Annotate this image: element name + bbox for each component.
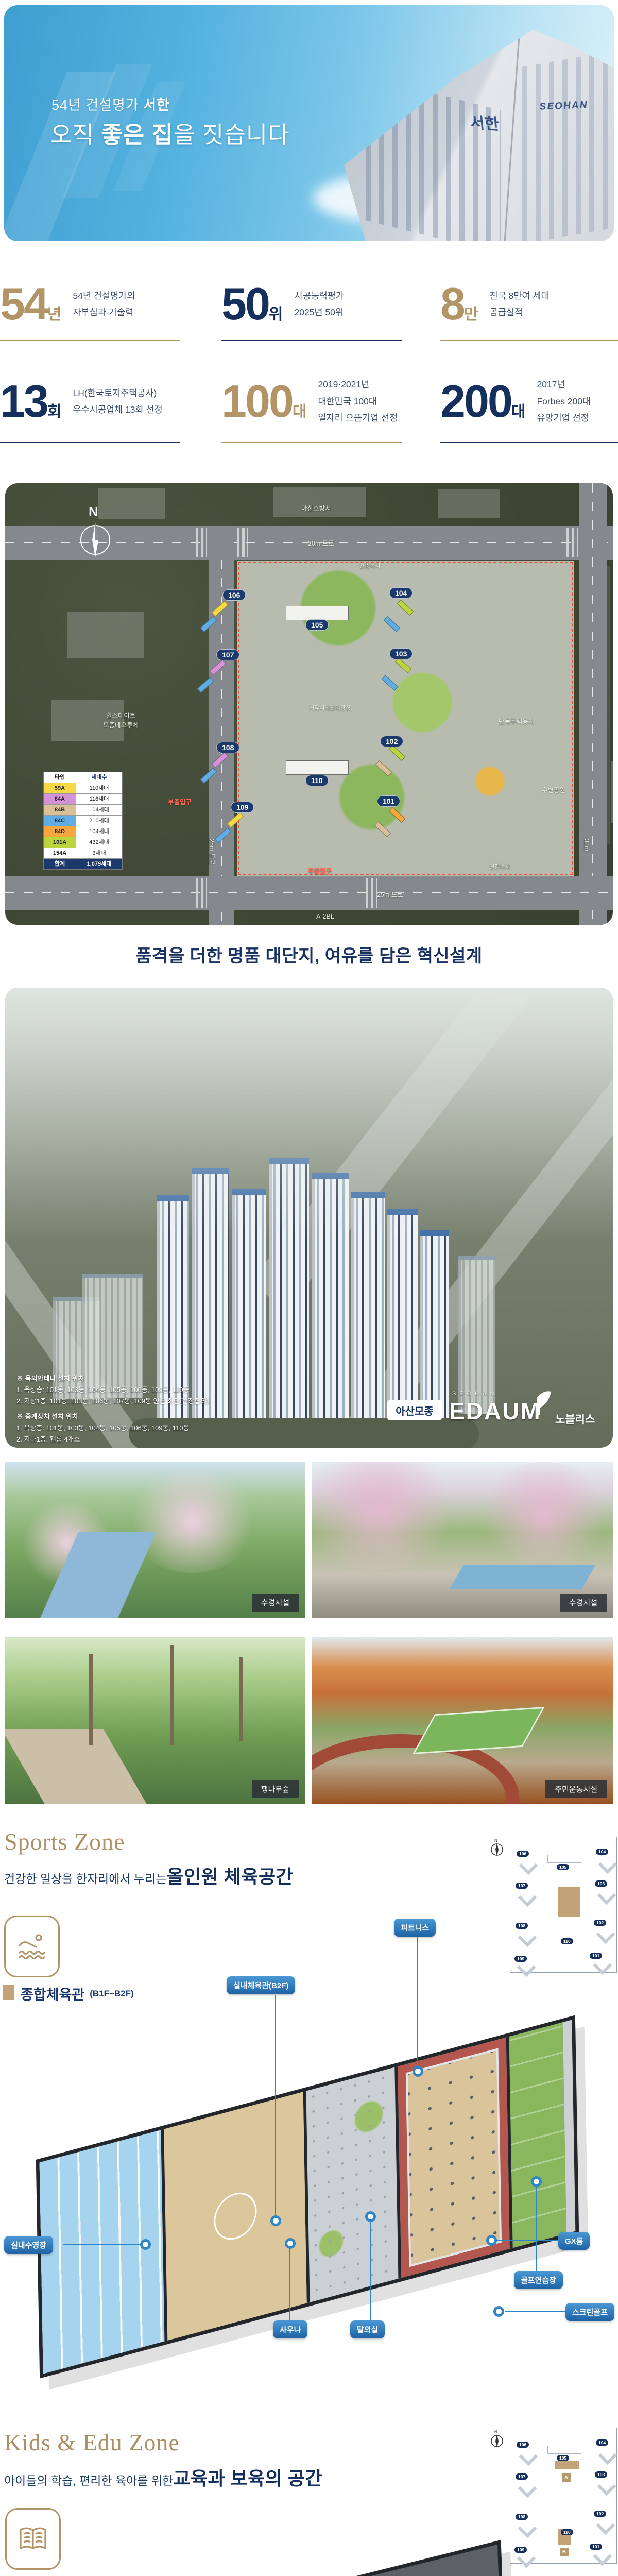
minimap-pill: 102: [594, 1920, 606, 1926]
callout-dot: [493, 2306, 504, 2317]
photo-label: 주민운동시설: [545, 1780, 607, 1798]
minimap-community-shape: [550, 1929, 583, 1937]
minimap-building-shape: [518, 1928, 537, 1947]
stat-value: 100: [221, 376, 293, 427]
callout-dot: [365, 2211, 376, 2222]
minimap-pill: 105: [557, 1864, 569, 1870]
minimap-building-shape: [519, 1856, 538, 1875]
callout-line: [370, 2218, 371, 2320]
minimap-pill: 108: [516, 2514, 528, 2520]
stat-households: 8만 전국 8만여 세대공급실적: [440, 268, 618, 341]
stat-desc: 2019·2021년대한민국 100대일자리 으뜸기업 선정: [318, 376, 398, 426]
stat-number: 50위: [221, 281, 283, 327]
landscape-photo-water-feature-2: 수경시설: [312, 1462, 613, 1618]
minimap-pill: 108: [516, 1923, 528, 1929]
legend-row: 59A110세대: [44, 783, 122, 793]
landscape-photo-forest: 팽나무숲: [5, 1637, 305, 1804]
minimap-badge-a: A: [562, 2473, 571, 2482]
stat-desc: 2017년Forbes 200대유망기업 선정: [537, 376, 591, 426]
label-road-25m-bottom: 25m 도로: [377, 889, 403, 899]
legend-row: 84C210세대: [44, 815, 122, 826]
minimap-community-shape: [547, 1855, 581, 1863]
road-centerline: [5, 892, 613, 893]
compass-icon: N: [77, 505, 113, 564]
building-pill-104: 104: [389, 587, 413, 599]
label-main-gate: 주출입구: [308, 866, 332, 875]
offsite-block: [438, 489, 500, 518]
legend-total-row: 합계1,079세대: [44, 858, 122, 869]
crosswalk: [566, 528, 578, 557]
stat-desc: 54년 건설명가의자부심과 기술력: [73, 287, 135, 321]
stat-unit: 년: [47, 306, 62, 323]
minimap-compass-icon: N: [490, 2429, 504, 2452]
stat-desc: LH(한국토지주택공사)우수시공업체 13회 선정: [73, 385, 163, 418]
stat-unit: 회: [47, 403, 62, 420]
seohan-headquarters-building: [344, 30, 614, 241]
logo-noblesse-text: 노블리스: [555, 1411, 595, 1427]
label-buffer-green: 완충녹지: [359, 562, 380, 570]
callout-line: [496, 2240, 558, 2241]
stat-value: 200: [440, 376, 511, 427]
logo-leaf-icon: [534, 1388, 552, 1420]
building-pill-102: 102: [380, 736, 403, 747]
minimap-pill: 110: [561, 1938, 573, 1944]
stat-desc: 전국 8만여 세대공급실적: [490, 287, 550, 321]
label-road-20m: 20m 도로: [308, 538, 334, 548]
label-waterside-park: 수변공원: [542, 785, 565, 794]
building-edge: [504, 30, 521, 241]
site-plan-map: 106 104 105 107 103 108 102 110 109 101 …: [5, 483, 613, 925]
crosswalk: [196, 528, 207, 557]
stat-rank: 50위 시공능력평가2025년 50위: [221, 268, 402, 341]
label-road-32m: 32m: [583, 839, 590, 851]
building-pill-105: 105: [305, 619, 329, 631]
callout-fitness: 피트니스: [394, 1919, 436, 1937]
callout-dot: [140, 2239, 151, 2250]
sports-facility-label: 종합체육관(B1F~B2F): [21, 1984, 134, 2004]
svg-text:N: N: [494, 2430, 497, 2434]
legend-row: 84A116세대: [44, 793, 122, 804]
stat-number: 8만: [440, 281, 478, 327]
minimap-pill: 109: [514, 1956, 527, 1962]
walking-path: [5, 1729, 147, 1804]
headline-bold: 좋은 집: [101, 122, 174, 148]
logo-edaum-brand: EDAUM: [449, 1397, 541, 1425]
minimap-highlight-a: [555, 2461, 579, 2469]
kids-label-a-line1: A 다함께 돌봄센터 &: [4, 2574, 129, 2576]
sports-zone-subtitle: 건강한 일상을 한자리에서 누리는 올인원 체육공간: [4, 1862, 293, 1889]
stat-value: 8: [440, 278, 464, 329]
callout-gx-room: GX룸: [558, 2232, 590, 2250]
label-hillstate: 힐스테이트 모종네오루체: [103, 710, 139, 730]
building-pill-107: 107: [216, 649, 239, 660]
blossom-canopy: [477, 1462, 611, 1565]
hero-banner: 서한 SEOHAN 54년 건설명가 서한 오직 좋은 집을 짓습니다: [4, 5, 614, 241]
photo-label: 수경시설: [560, 1594, 607, 1612]
minimap-community-shape: [547, 2446, 581, 2454]
minimap-pill: 106: [517, 2442, 529, 2448]
minimap-badge-b: B: [560, 2548, 569, 2556]
callout-line: [505, 2311, 565, 2312]
stat-number: 200대: [440, 379, 525, 424]
small-library-floorplan: [234, 2540, 506, 2576]
sports-minimap: 106 105 104 107 103 108 110 102 109 101: [510, 1837, 617, 1973]
label-sub-gate: 부출입구: [168, 796, 192, 806]
logo-location-badge: 아산모종: [387, 1400, 442, 1420]
tree-trunk: [89, 1654, 93, 1746]
swimmer-icon: [4, 1916, 60, 1977]
minimap-pill: 101: [590, 2544, 602, 2550]
minimap-pill: 104: [596, 1849, 608, 1855]
svg-text:N: N: [494, 1838, 497, 1843]
minimap-building-shape: [598, 2446, 617, 2465]
minimap-building-shape: [597, 1886, 616, 1905]
lawn-court: [413, 1707, 545, 1754]
callout-sauna: 사우나: [273, 2320, 307, 2338]
minimap-building-shape: [593, 1956, 612, 1975]
sports-zone-title: Sports Zone: [4, 1828, 125, 1855]
stat-number: 54년: [0, 281, 62, 327]
crosswalk: [196, 878, 207, 908]
road-centerline: [592, 483, 593, 925]
minimap-community-shape: [550, 2520, 583, 2528]
legend-row: 101A432세대: [44, 837, 122, 848]
minimap-highlight-gym: [558, 1887, 580, 1917]
open-book-icon: [5, 2508, 61, 2570]
tree-trunk: [170, 1645, 174, 1745]
callout-line: [275, 1995, 276, 2219]
antenna-note-line: 2. 지상1층: 101동, 103동, 106동, 107동, 109동 인근…: [16, 1396, 209, 1405]
blossom-canopy: [312, 1462, 461, 1570]
building-pill-109: 109: [231, 802, 254, 813]
minimap-pill: 103: [595, 2471, 607, 2478]
minimap-building-shape: [518, 1888, 537, 1907]
promo-page: 서한 SEOHAN 54년 건설명가 서한 오직 좋은 집을 짓습니다 54년 …: [0, 0, 618, 2576]
crosswalk: [366, 878, 377, 908]
callout-locker: 탈의실: [350, 2320, 385, 2338]
hero-headline: 오직 좋은 집을 짓습니다: [50, 116, 290, 149]
minimap-building-shape: [596, 1925, 615, 1944]
legend-row: 84B104세대: [44, 804, 122, 815]
building-pill-106: 106: [222, 589, 246, 601]
callout-dot: [285, 2238, 296, 2249]
tree-trunk: [239, 1657, 243, 1741]
building-pill-103: 103: [389, 648, 413, 659]
minimap-pill: 107: [516, 2473, 528, 2480]
tagline-prefix: 54년 건설명가: [51, 97, 143, 113]
legend-header: 타입 세대수: [44, 772, 122, 783]
callout-golf-range: 골프연습장: [514, 2271, 563, 2289]
plan-pool-area: [40, 2130, 165, 2374]
minimap-building-shape: [597, 2477, 616, 2496]
stat-value: 50: [221, 278, 269, 329]
antenna-note-title: ※ 옥외안테나 설치 위치: [16, 1373, 84, 1383]
building-sign-en: SEOHAN: [539, 99, 588, 112]
building-pill-101: 101: [377, 795, 400, 807]
minimap-pill: 104: [596, 2439, 608, 2446]
headline-pre: 오직: [50, 122, 101, 148]
minimap-building-shape: [519, 2447, 538, 2466]
stat-number: 13회: [0, 379, 62, 424]
landscape-photo-sports-facility: 주민운동시설: [312, 1637, 613, 1804]
callout-line: [289, 2245, 290, 2320]
label-detached-housing: 단독주택용지: [499, 716, 534, 726]
repeater-note-title: ※ 중계장치 설치 위치: [16, 1411, 78, 1421]
minimap-building-shape: [596, 2516, 615, 2535]
facility-label-square: [3, 1985, 14, 2000]
stat-lh-awards: 13회 LH(한국토지주택공사)우수시공업체 13회 선정: [0, 361, 180, 443]
stat-years: 54년 54년 건설명가의자부심과 기술력: [0, 268, 180, 341]
repeater-note-line: 1. 옥상층: 101동, 103동, 104동, 105동, 106동, 10…: [16, 1422, 189, 1432]
legend-row: 84D104세대: [44, 826, 122, 837]
callout-dot: [270, 2215, 281, 2226]
birdseye-rendering: ※ 옥외안테나 설치 위치 1. 옥상층: 101동, 103동, 104동, …: [5, 988, 613, 1448]
label-fire-station: 아산소방서: [301, 503, 331, 513]
minimap-pill: 109: [514, 2547, 527, 2553]
kids-minimap: A B 106 105 104 107 103 108 110 102 109 …: [510, 2428, 617, 2564]
kids-zone-subtitle: 아이들의 학습, 편리한 육아를 위한 교육과 보육의 공간: [4, 2464, 322, 2490]
minimap-building-shape: [518, 2479, 537, 2498]
crosswalk: [237, 528, 248, 557]
minimap-compass-icon: N: [490, 1837, 504, 1860]
building-windows: [522, 52, 609, 241]
logo-seohan-text: SEOHAN: [452, 1391, 497, 1397]
stat-unit: 만: [464, 306, 478, 323]
mist-overlay: [5, 988, 613, 1448]
stat-unit: 대: [293, 403, 307, 420]
minimap-pill: 103: [595, 1880, 607, 1887]
callout-pool: 실내수영장: [4, 2236, 53, 2254]
callout-dot: [531, 2176, 542, 2187]
offsite-block: [273, 487, 366, 517]
plan-lobby: [303, 2067, 399, 2303]
kids-zone-title: Kids & Edu Zone: [4, 2429, 180, 2456]
stat-unit: 위: [269, 306, 283, 323]
minimap-building-shape: [593, 2547, 612, 2566]
blossom-trees: [125, 1470, 259, 1573]
minimap-pill: 101: [590, 1953, 602, 1959]
callout-indoor-gym: 실내체육관(B2F): [227, 1976, 295, 1994]
unit-type-legend: 타입 세대수 59A110세대 84A116세대 84B104세대 84C210…: [43, 772, 123, 870]
building-sign-kr: 서한: [469, 110, 500, 134]
offsite-block: [611, 761, 613, 823]
tagline-brand: 서한: [143, 97, 170, 113]
minimap-building-shape: [518, 2519, 537, 2538]
svg-text:N: N: [89, 505, 98, 519]
hero-tagline: 54년 건설명가 서한: [51, 94, 170, 114]
photo-label: 수경시설: [252, 1594, 299, 1612]
label-road-25m-left: 25m 도로: [208, 839, 217, 865]
plan-basketball-court: [161, 2092, 306, 2341]
sports-floorplan: [36, 2015, 579, 2378]
minimap-pill: 106: [517, 1851, 529, 1857]
stat-unit: 대: [511, 403, 526, 420]
callout-dot: [486, 2235, 497, 2246]
minimap-pill: 102: [594, 2511, 606, 2517]
minimap-pill: 110: [561, 2529, 573, 2535]
stat-forbes: 200대 2017년Forbes 200대유망기업 선정: [440, 361, 618, 443]
stat-desc: 시공능력평가2025년 50위: [295, 287, 345, 321]
callout-line: [417, 1937, 418, 2069]
minimap-pill: 105: [557, 2455, 569, 2461]
repeater-note-line: 2. 지하1층: 휀룸 4개소: [16, 1434, 80, 1444]
building-windows: [366, 76, 501, 241]
minimap-pill: 107: [516, 1883, 528, 1889]
antenna-note-line: 1. 옥상층: 101동, 103동, 104동, 105동, 106동, 10…: [16, 1384, 189, 1394]
callout-screen-golf: 스크린골프: [565, 2303, 614, 2321]
label-link-green: 연결녹지: [489, 862, 510, 871]
stat-top100: 100대 2019·2021년대한민국 100대일자리 으뜸기업 선정: [221, 361, 402, 443]
callout-dot: [413, 2066, 423, 2077]
photo-label: 팽나무숲: [252, 1780, 299, 1798]
building-pill-110: 110: [305, 775, 329, 786]
legend-row: 154A3세대: [44, 848, 122, 858]
headline-post: 을 짓습니다: [174, 122, 290, 148]
label-community-lawn: 커뮤니티잔디광장: [309, 704, 351, 712]
callout-line: [63, 2244, 141, 2245]
offsite-block: [67, 612, 144, 658]
stat-value: 54: [0, 278, 47, 329]
building-pill-108: 108: [216, 742, 239, 753]
landscape-photo-water-feature-1: 수경시설: [5, 1462, 305, 1618]
label-block: A-2BL: [316, 913, 334, 920]
fountain-pool: [449, 1565, 596, 1589]
callout-line: [536, 2184, 537, 2271]
stat-value: 13: [0, 376, 47, 427]
minimap-building-shape: [598, 1855, 617, 1874]
stat-number: 100대: [221, 379, 306, 424]
community-building-105: [286, 606, 349, 620]
section-headline: 품격을 더한 명품 대단지, 여유를 담은 혁신설계: [0, 942, 618, 967]
community-building-110: [286, 760, 349, 775]
